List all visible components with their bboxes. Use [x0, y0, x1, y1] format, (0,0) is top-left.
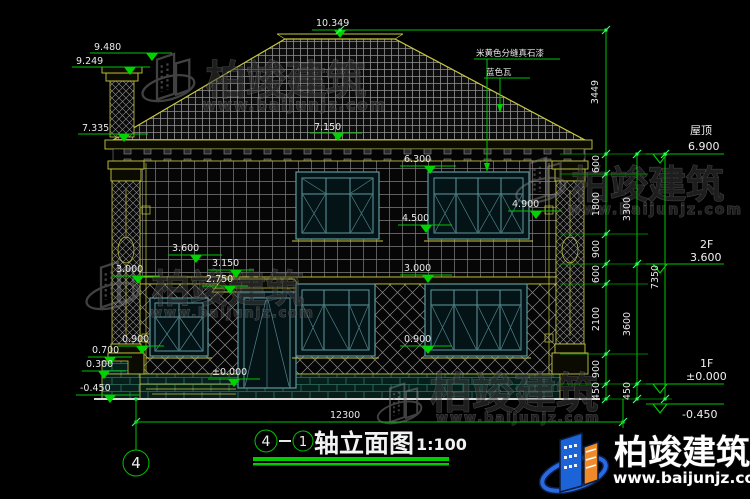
dim-text: 450 — [622, 382, 633, 400]
level-text: 0.900 — [404, 334, 431, 345]
note-label: 米黄色分缝真石漆 — [476, 48, 545, 59]
dim-text: 600 — [591, 265, 602, 283]
level-text: 6.900 — [688, 140, 720, 153]
dim-text: 900 — [591, 360, 602, 378]
level-text: 0.700 — [92, 345, 119, 356]
title-scale: 1:100 — [416, 435, 467, 454]
dentil-cornice — [113, 149, 585, 161]
level-text: 1F — [700, 357, 713, 370]
level-ridge: 10.349 — [312, 18, 606, 38]
title-text: 轴立面图 — [314, 429, 414, 458]
title-axis-b: 1 — [299, 435, 307, 450]
elevation-drawing: 柏竣建筑 www.baijunjz.com 柏竣建筑 www.baijunjz.… — [0, 0, 750, 499]
dim-text: 12300 — [330, 410, 360, 421]
dim-text: 7350 — [650, 265, 661, 289]
dim-text: 3300 — [622, 197, 633, 221]
level-text: 0.300 — [86, 359, 113, 370]
note-label: 蓝色瓦 — [486, 67, 512, 78]
level-text: 2.750 — [206, 274, 233, 285]
level-text: 9.480 — [94, 42, 121, 53]
brand-name: 柏竣建筑 — [614, 433, 750, 473]
level-text: 屋顶 — [690, 124, 712, 137]
brand-logo: 柏竣建筑 www.baijunjz.com — [538, 433, 750, 498]
level-text: 3.000 — [116, 264, 143, 275]
axis-bubble-4: 4 — [123, 450, 149, 476]
level-text: ±0.000 — [212, 367, 247, 378]
title-underline — [253, 457, 449, 461]
dim-text: 2100 — [591, 307, 602, 331]
level-roof-right: 屋顶 6.900 — [646, 124, 724, 163]
level-text: 2F — [700, 238, 713, 251]
level-text: 3.600 — [690, 251, 722, 264]
level-text: 0.900 — [122, 334, 149, 345]
brand-site: www.baijunjz.com — [613, 469, 750, 487]
level-text: 4.900 — [512, 199, 539, 210]
dim-text: 900 — [591, 240, 602, 258]
watermark-url: www.baijunjz.com — [202, 96, 387, 114]
level-text: 4.500 — [402, 213, 429, 224]
axis-label: 4 — [131, 454, 141, 472]
chimney-cap-slab — [102, 67, 142, 73]
level-1f-right: 1F ±0.000 — [646, 357, 727, 393]
dim-text: 3449 — [590, 80, 601, 104]
chimney-shaft — [110, 81, 134, 137]
level-text: -0.450 — [682, 408, 717, 421]
level-text: 3.000 — [404, 263, 431, 274]
level-text: ±0.000 — [686, 370, 727, 383]
level-text: -0.450 — [80, 383, 111, 394]
level-text: 3.150 — [212, 258, 239, 269]
level-text: 3.600 — [172, 243, 199, 254]
level-text: 9.249 — [76, 56, 103, 67]
window-2f-left — [292, 172, 383, 241]
level-text: 7.150 — [314, 122, 341, 133]
level-text: 7.335 — [82, 123, 109, 134]
drawing-title: 4 1 轴立面图 1:100 — [253, 429, 467, 466]
level-text: 10.349 — [316, 18, 349, 29]
watermark-url: www.baijunjz.com — [436, 411, 601, 426]
window-1f-right — [421, 284, 531, 358]
window-1f-middle — [292, 284, 379, 358]
level-ground-right: -0.450 — [646, 404, 724, 421]
dim-text: 450 — [591, 382, 602, 400]
title-axis-a: 4 — [262, 434, 271, 450]
brand-logo-icon — [538, 433, 609, 498]
chimney-cap-band — [106, 73, 138, 81]
dim-text: 1800 — [591, 192, 602, 216]
dim-text: 3600 — [622, 312, 633, 336]
title-underline-2 — [253, 463, 449, 466]
level-text: 6.300 — [404, 154, 431, 165]
dim-text: 600 — [591, 155, 602, 173]
watermark-url: www.baijunjz.com — [150, 306, 315, 321]
fascia-band — [105, 140, 592, 149]
